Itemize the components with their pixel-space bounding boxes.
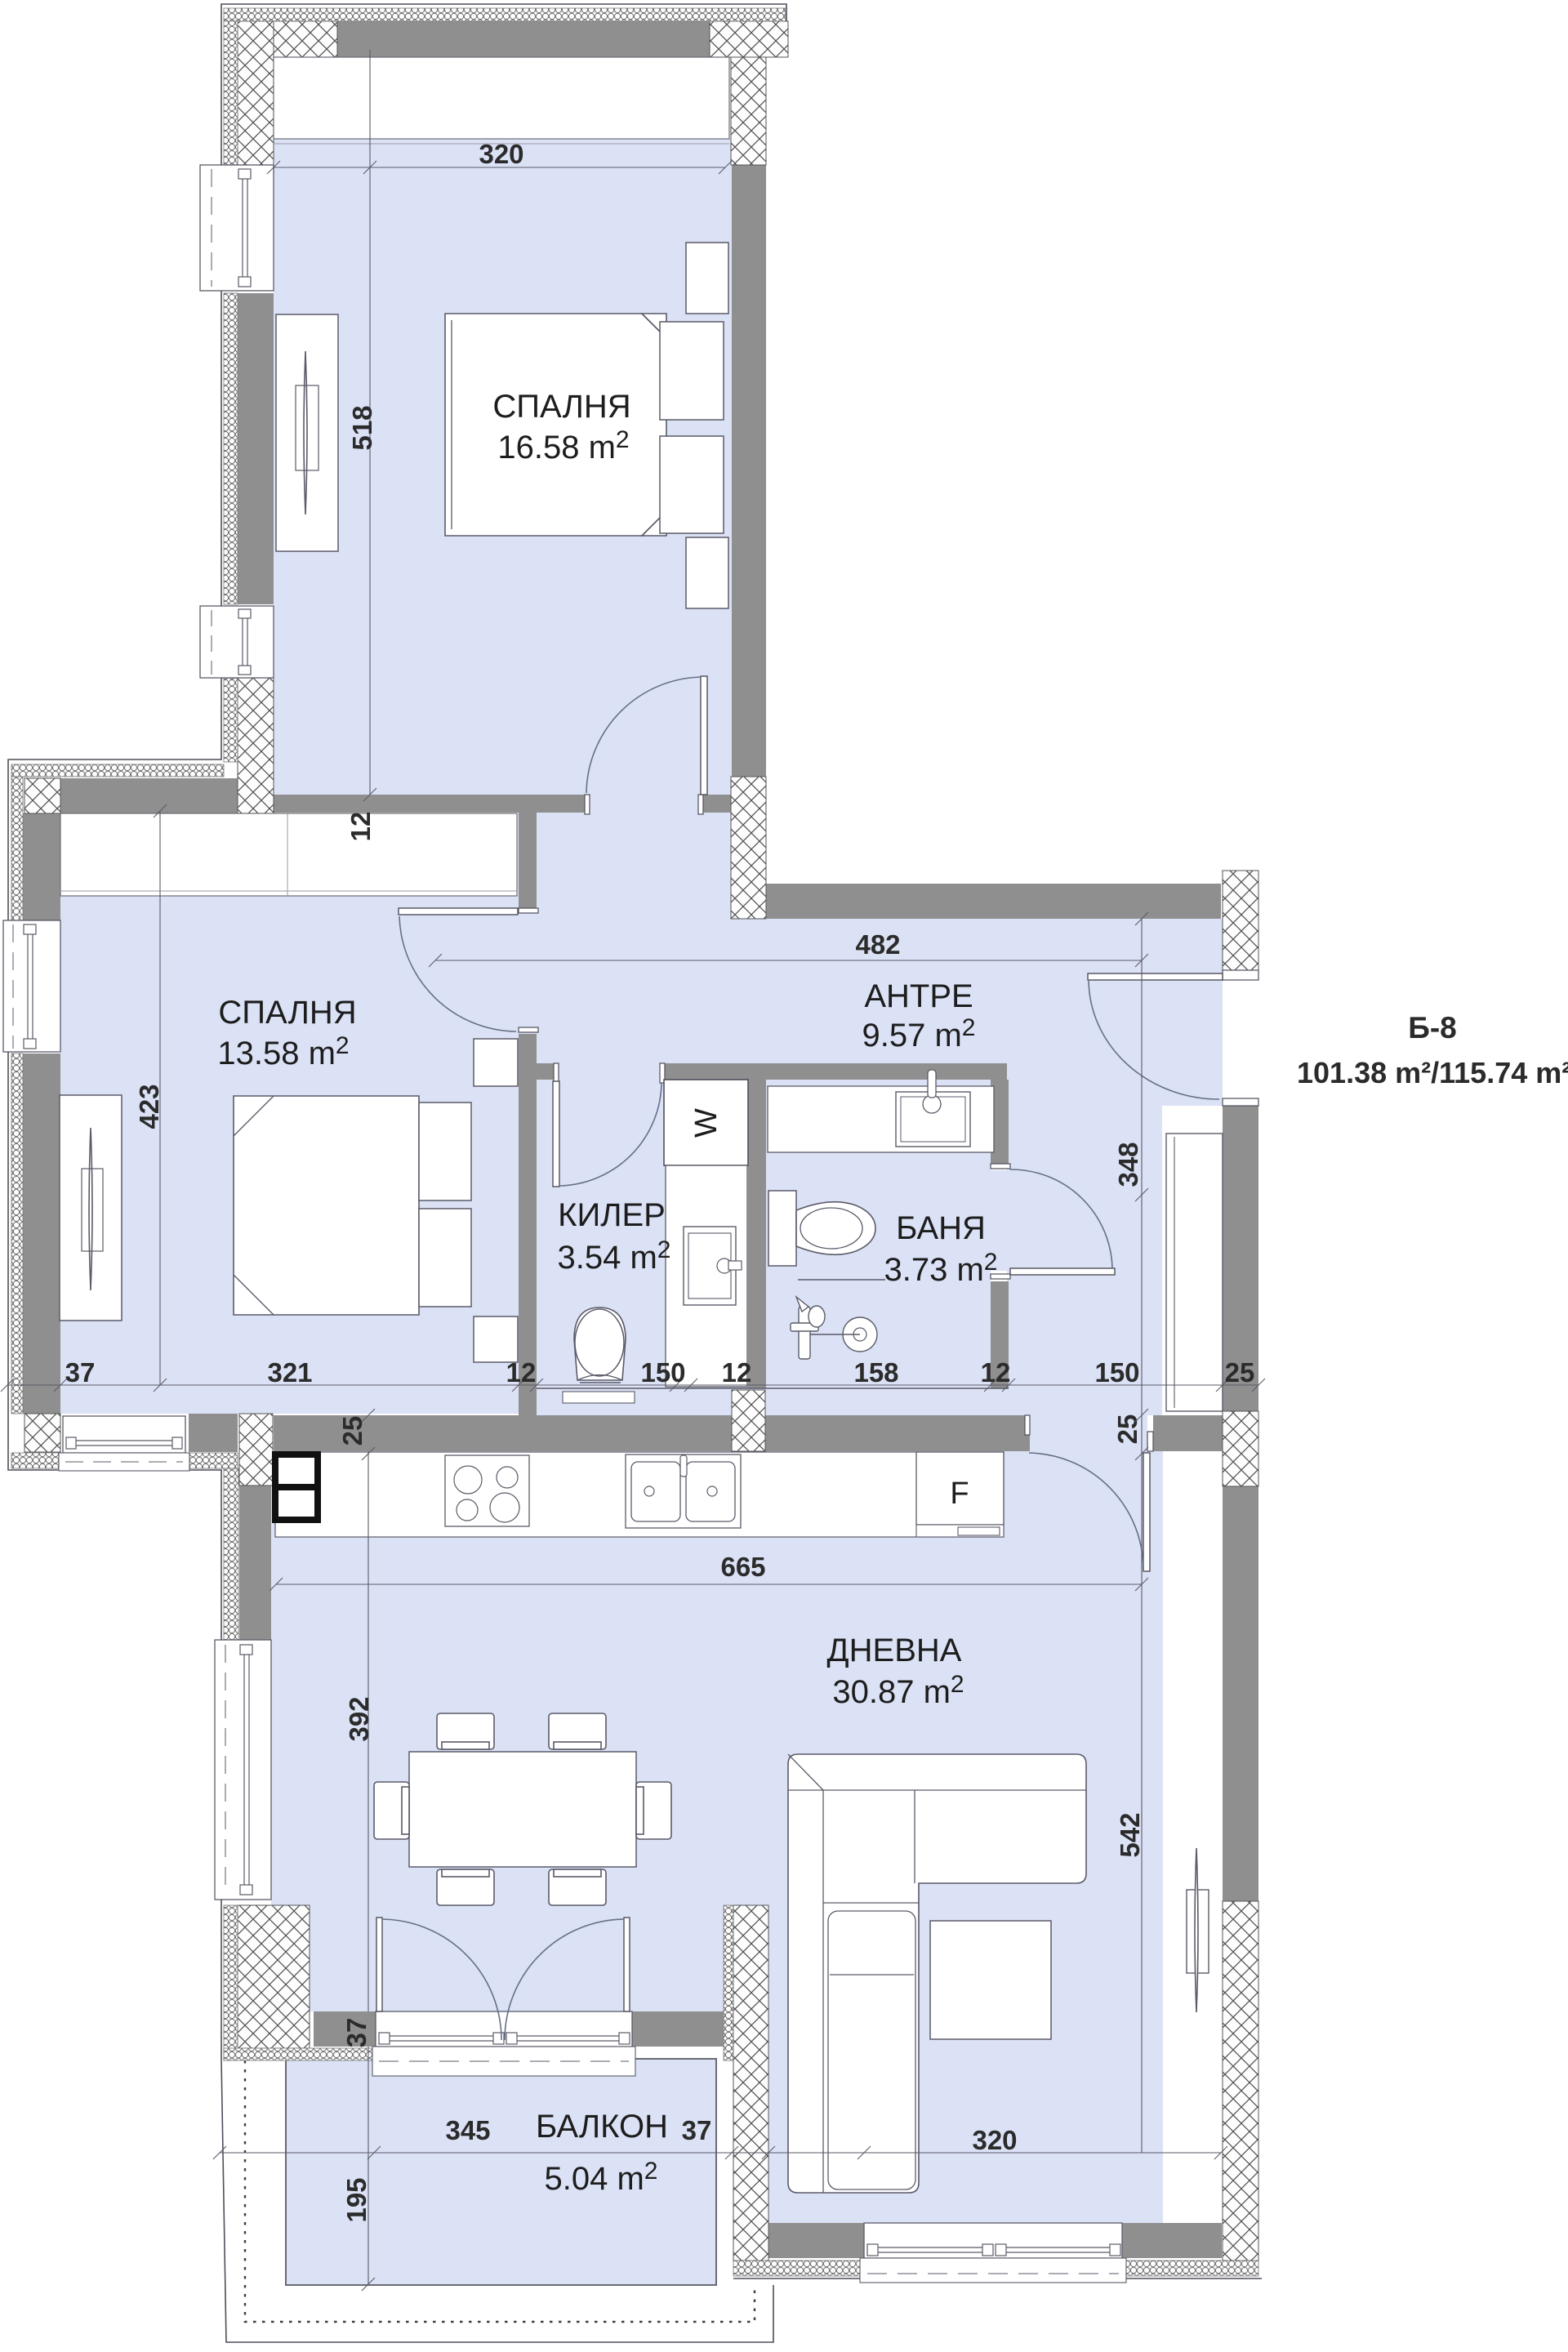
svg-text:БАНЯ: БАНЯ (896, 1210, 986, 1246)
svg-text:392: 392 (344, 1696, 374, 1741)
svg-text:150: 150 (640, 1357, 685, 1388)
svg-text:W: W (689, 1108, 724, 1138)
svg-text:12: 12 (345, 812, 376, 842)
svg-text:542: 542 (1115, 1812, 1145, 1857)
svg-text:195: 195 (341, 2177, 372, 2222)
svg-text:348: 348 (1113, 1142, 1143, 1187)
svg-text:КИЛЕР: КИЛЕР (558, 1197, 666, 1233)
svg-text:13.58 m2: 13.58 m2 (217, 1032, 349, 1071)
svg-text:665: 665 (720, 1552, 765, 1582)
svg-text:12: 12 (981, 1357, 1011, 1388)
svg-text:37: 37 (682, 2115, 712, 2145)
svg-text:101.38 m²/115.74 m²: 101.38 m²/115.74 m² (1297, 1056, 1568, 1089)
svg-text:320: 320 (972, 2125, 1017, 2155)
svg-text:5.04 m2: 5.04 m2 (545, 2158, 658, 2197)
svg-text:СПАЛНЯ: СПАЛНЯ (492, 389, 630, 425)
svg-text:Б-8: Б-8 (1408, 1011, 1457, 1045)
svg-text:158: 158 (853, 1357, 898, 1388)
svg-text:150: 150 (1094, 1357, 1139, 1388)
svg-text:F: F (950, 1477, 969, 1511)
svg-text:423: 423 (134, 1084, 164, 1129)
svg-text:518: 518 (347, 405, 377, 450)
svg-text:482: 482 (855, 929, 900, 960)
svg-text:37: 37 (341, 2018, 372, 2048)
svg-text:СПАЛНЯ: СПАЛНЯ (218, 995, 356, 1031)
svg-text:3.73 m2: 3.73 m2 (884, 1249, 998, 1288)
svg-text:3.54 m2: 3.54 m2 (558, 1236, 671, 1276)
svg-text:25: 25 (1225, 1357, 1255, 1388)
svg-text:320: 320 (479, 139, 523, 169)
svg-text:АНТРЕ: АНТРЕ (864, 978, 973, 1014)
svg-text:321: 321 (267, 1357, 312, 1388)
svg-text:16.58 m2: 16.58 m2 (497, 426, 629, 465)
svg-text:37: 37 (65, 1357, 96, 1388)
svg-text:30.87 m2: 30.87 m2 (832, 1671, 964, 1710)
svg-text:ДНЕВНА: ДНЕВНА (827, 1633, 962, 1668)
svg-text:12: 12 (506, 1357, 537, 1388)
svg-text:БАЛКОН: БАЛКОН (536, 2109, 668, 2145)
svg-text:345: 345 (445, 2115, 490, 2145)
svg-text:12: 12 (722, 1357, 752, 1388)
svg-text:9.57 m2: 9.57 m2 (862, 1014, 976, 1053)
